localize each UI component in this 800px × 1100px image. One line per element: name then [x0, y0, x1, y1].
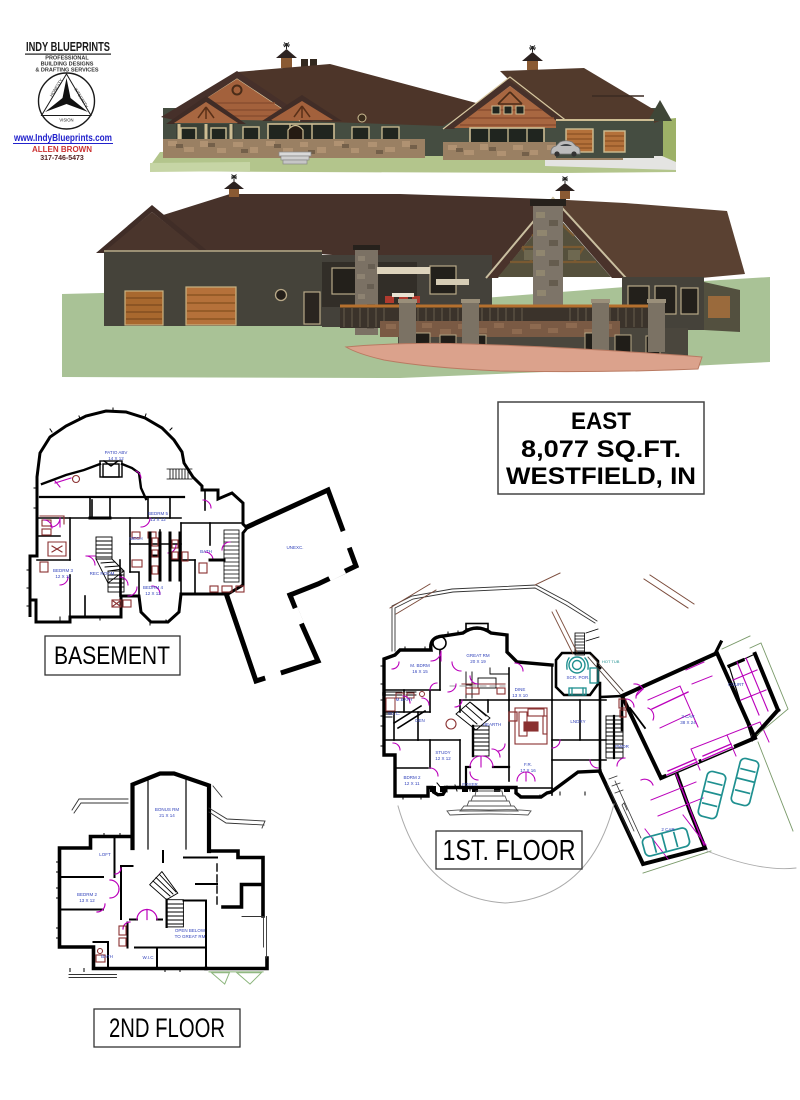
svg-text:8,077 SQ.FT.: 8,077 SQ.FT. — [521, 436, 681, 463]
svg-text:W.I.C.: W.I.C. — [388, 711, 400, 716]
svg-text:OPEN BELOW: OPEN BELOW — [175, 928, 206, 933]
svg-text:BEDRM 2: BEDRM 2 — [77, 892, 98, 897]
svg-text:BATH: BATH — [200, 549, 212, 554]
svg-text:12 X 12: 12 X 12 — [145, 591, 161, 596]
svg-text:14 X 12: 14 X 12 — [108, 456, 124, 461]
svg-text:M.BATH: M.BATH — [396, 697, 413, 702]
svg-text:WESTFIELD, IN: WESTFIELD, IN — [506, 463, 696, 490]
svg-text:BDRM 2: BDRM 2 — [403, 775, 420, 780]
svg-text:DINE: DINE — [515, 687, 526, 692]
svg-text:16 X 15: 16 X 15 — [412, 669, 428, 674]
svg-text:3 CAR: 3 CAR — [681, 714, 695, 719]
svg-text:REC ROOM: REC ROOM — [90, 571, 115, 576]
svg-text:LOFT: LOFT — [99, 852, 111, 857]
svg-text:1ST. FLOOR: 1ST. FLOOR — [443, 835, 576, 867]
svg-text:BEDRM 4: BEDRM 4 — [143, 585, 164, 590]
svg-text:317-746-5473: 317-746-5473 — [40, 155, 84, 162]
svg-text:PWDR: PWDR — [615, 744, 629, 749]
svg-text:HOT TUB: HOT TUB — [602, 659, 620, 664]
svg-text:12 X 12: 12 X 12 — [435, 756, 451, 761]
svg-text:COURT: COURT — [728, 682, 744, 687]
svg-text:VISION: VISION — [59, 118, 73, 123]
svg-text:PATIO ABV: PATIO ABV — [105, 450, 128, 455]
svg-text:TO GREAT RM: TO GREAT RM — [175, 934, 206, 939]
svg-text:F.R.: F.R. — [524, 762, 532, 767]
svg-text:UNEXC.: UNEXC. — [286, 545, 303, 550]
svg-text:13 X 10: 13 X 10 — [512, 693, 528, 698]
svg-text:HEARTH: HEARTH — [483, 722, 501, 727]
svg-text:38 X 24: 38 X 24 — [680, 720, 696, 725]
svg-text:20 X 19: 20 X 19 — [470, 659, 486, 664]
svg-text:INDY BLUEPRINTS: INDY BLUEPRINTS — [26, 40, 110, 54]
svg-text:STUDY: STUDY — [435, 750, 450, 755]
svg-text:ALLEN BROWN: ALLEN BROWN — [32, 145, 92, 154]
svg-text:BEDRM 3: BEDRM 3 — [53, 568, 74, 573]
svg-text:W.I.C: W.I.C — [143, 955, 155, 960]
svg-text:21 X 14: 21 X 14 — [159, 813, 175, 818]
svg-text:GREAT RM: GREAT RM — [466, 653, 490, 658]
svg-text:LNDRY: LNDRY — [570, 719, 585, 724]
svg-text:BASEMENT: BASEMENT — [54, 642, 170, 670]
svg-text:BEDRM 5: BEDRM 5 — [148, 511, 169, 516]
svg-text:BONUS RM: BONUS RM — [155, 807, 180, 812]
svg-text:13 X 12: 13 X 12 — [150, 517, 166, 522]
svg-text:M. BDRM: M. BDRM — [410, 663, 430, 668]
svg-text:2ND FLOOR: 2ND FLOOR — [109, 1013, 225, 1043]
svg-text:EAST: EAST — [571, 408, 631, 435]
svg-text:2 CAR: 2 CAR — [661, 827, 675, 832]
svg-text:17 X 16: 17 X 16 — [520, 768, 536, 773]
svg-text:BATH: BATH — [101, 954, 113, 959]
svg-text:MECH: MECH — [129, 536, 142, 541]
svg-text:12 X 11: 12 X 11 — [404, 781, 420, 786]
svg-text:DEN: DEN — [415, 718, 425, 723]
svg-text:FOYER: FOYER — [462, 782, 478, 787]
svg-text:12 X 11: 12 X 11 — [55, 574, 71, 579]
svg-text:13 X 12: 13 X 12 — [79, 898, 95, 903]
svg-text:www.IndyBlueprints.com: www.IndyBlueprints.com — [13, 132, 112, 144]
svg-text:SCR. POR.: SCR. POR. — [566, 675, 589, 680]
